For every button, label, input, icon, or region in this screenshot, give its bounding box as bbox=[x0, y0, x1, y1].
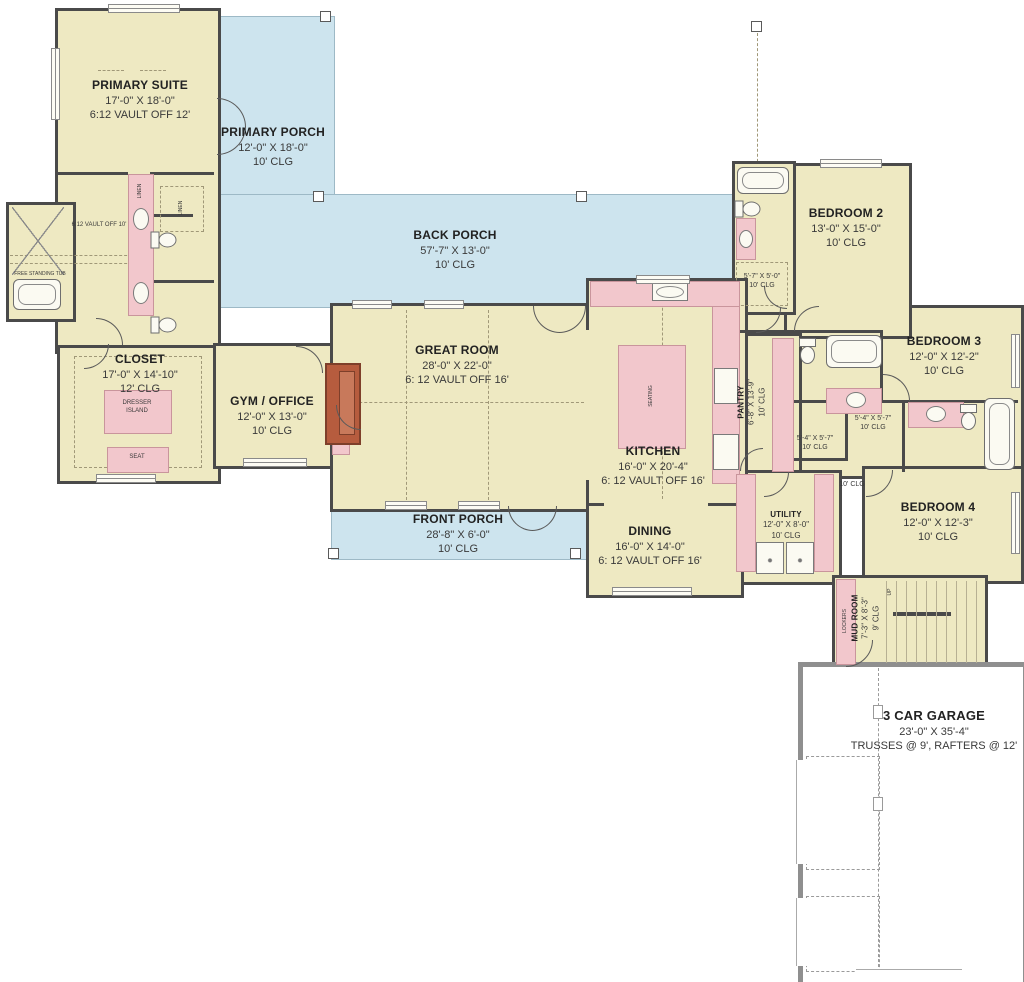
washer-icon bbox=[756, 542, 784, 574]
window bbox=[820, 159, 882, 168]
room-note: 6: 12 VAULT OFF 16' bbox=[598, 554, 702, 568]
room-label-closet: CLOSET 17'-0" X 14'-10" 12' CLG bbox=[102, 352, 178, 396]
room-label-wic-mid: 5'-4" X 5'-7" 10' CLG bbox=[855, 414, 891, 432]
dryer-icon bbox=[786, 542, 814, 574]
room-note: 10' CLG bbox=[907, 364, 981, 378]
wall-segment bbox=[150, 280, 214, 283]
room-note: 10' CLG bbox=[744, 281, 780, 290]
room-dims: 12'-0" X 13'-0" bbox=[230, 410, 314, 424]
room-name: BEDROOM 2 bbox=[809, 206, 883, 222]
wall-segment bbox=[902, 400, 905, 472]
room-note: 6: 12 VAULT OFF 16' bbox=[405, 373, 509, 387]
utility-counter bbox=[814, 474, 834, 572]
room-label-bedroom2: BEDROOM 2 13'-0" X 15'-0" 10' CLG bbox=[809, 206, 883, 250]
primary-bath-vault-label: 6:12 VAULT OFF 10' bbox=[72, 222, 127, 230]
room-name: PRIMARY SUITE bbox=[90, 78, 191, 94]
furniture-text: FREE STANDING TUB bbox=[14, 271, 66, 278]
room-label-bedroom2-closet: 5'-7" X 5'-0" 10' CLG bbox=[744, 272, 780, 290]
ceiling-line bbox=[334, 402, 584, 403]
furniture-text: SEATING bbox=[648, 385, 655, 407]
room-name: DINING bbox=[598, 524, 702, 540]
window bbox=[51, 48, 60, 120]
room-dims: 5'-4" X 5'-7" bbox=[855, 414, 891, 423]
room-dims: 5'-4" X 5'-7" bbox=[797, 434, 833, 443]
room-name: MUD ROOM bbox=[850, 595, 860, 642]
vault-line bbox=[98, 70, 124, 71]
furniture-text: LINEN bbox=[137, 184, 144, 199]
room-label-great-room: GREAT ROOM 28'-0" X 22'-0" 6: 12 VAULT O… bbox=[405, 343, 509, 387]
porch-post-icon bbox=[751, 21, 762, 32]
furniture-text: SEAT bbox=[129, 454, 144, 462]
garage-door-opening bbox=[796, 898, 807, 966]
toilet-icon bbox=[151, 316, 178, 336]
vault-line bbox=[140, 70, 166, 71]
room-dims: 16'-0" X 14'-0" bbox=[598, 540, 702, 554]
room-dims: 7'-3" X 8'-3" bbox=[861, 595, 871, 642]
porch-post-icon bbox=[320, 11, 331, 22]
stairs bbox=[886, 581, 978, 663]
porch-post-icon bbox=[313, 191, 324, 202]
ceiling-line bbox=[488, 310, 489, 500]
sink-icon bbox=[739, 230, 753, 248]
room-label-primary-porch: PRIMARY PORCH 12'-0" X 18'-0" 10' CLG bbox=[221, 125, 325, 169]
room-note: 10' CLG bbox=[809, 236, 883, 250]
room-dims: 5'-7" X 5'-0" bbox=[744, 272, 780, 281]
room-label-primary-suite: PRIMARY SUITE 17'-0" X 18'-0" 6:12 VAULT… bbox=[90, 78, 191, 122]
garage-door-opening bbox=[856, 969, 962, 980]
linen-closet-label: LINEN bbox=[178, 201, 185, 216]
window bbox=[352, 300, 392, 309]
range-icon bbox=[714, 368, 738, 404]
room-dims: 12'-0" X 12'-2" bbox=[907, 350, 981, 364]
room-name: CLOSET bbox=[102, 352, 178, 368]
garage-post-icon bbox=[873, 797, 883, 811]
garage-door-track bbox=[806, 756, 880, 870]
sink-icon bbox=[133, 282, 149, 304]
room-label-pantry: PANTRY 6'-8" X 13'-9" 10' CLG bbox=[736, 379, 767, 425]
room-note: 10' CLG bbox=[855, 423, 891, 432]
room-note: 12' CLG bbox=[102, 382, 178, 396]
window bbox=[458, 501, 500, 510]
window bbox=[108, 4, 180, 13]
cased-opening bbox=[604, 500, 708, 510]
room-note: 10' CLG bbox=[757, 379, 767, 425]
room-dims: 12'-0" X 18'-0" bbox=[221, 141, 325, 155]
room-note: 10' CLG bbox=[797, 443, 833, 452]
room-note: 9' CLG bbox=[871, 595, 881, 642]
room-note: TRUSSES @ 9', RAFTERS @ 12' bbox=[851, 739, 1018, 753]
room-dims: 17'-0" X 14'-10" bbox=[102, 368, 178, 382]
room-note: 10' CLG bbox=[901, 530, 975, 544]
room-dims: 28'-8" X 6'-0" bbox=[413, 528, 503, 542]
toilet-icon bbox=[151, 231, 178, 251]
window bbox=[1011, 334, 1020, 388]
room-dims: 6'-8" X 13'-9" bbox=[747, 379, 757, 425]
wall-segment bbox=[150, 172, 214, 175]
room-label-back-porch: BACK PORCH 57'-7" X 13'-0" 10' CLG bbox=[413, 228, 496, 272]
room-dims: 17'-0" X 18'-0" bbox=[90, 94, 191, 108]
room-name: PANTRY bbox=[736, 379, 746, 425]
sink-icon bbox=[926, 406, 946, 422]
wall-segment bbox=[58, 172, 128, 175]
furniture-text: DRESSER ISLAND bbox=[114, 400, 160, 416]
room-name: GREAT ROOM bbox=[405, 343, 509, 359]
freestanding-tub-icon bbox=[13, 279, 61, 310]
refrigerator-icon bbox=[713, 434, 739, 470]
room-name: BEDROOM 3 bbox=[907, 334, 981, 350]
window bbox=[96, 474, 156, 483]
linen-cabinet-label: LINEN bbox=[137, 184, 144, 199]
window bbox=[1011, 492, 1020, 554]
garage-door-opening bbox=[796, 760, 807, 864]
window bbox=[385, 501, 427, 510]
room-label-dining: DINING 16'-0" X 14'-0" 6: 12 VAULT OFF 1… bbox=[598, 524, 702, 568]
hall-ceiling-label: 10' CLG bbox=[839, 480, 864, 489]
furniture-text: LINEN bbox=[178, 201, 185, 216]
bathtub-icon bbox=[984, 398, 1015, 470]
wall-segment bbox=[788, 458, 848, 461]
shower-icon bbox=[12, 207, 64, 275]
room-label-front-porch: FRONT PORCH 28'-8" X 6'-0" 10' CLG bbox=[413, 512, 503, 556]
ceiling-line bbox=[406, 310, 407, 500]
floor-plan: PRIMARY SUITE 17'-0" X 18'-0" 6:12 VAULT… bbox=[0, 0, 1024, 982]
sink-icon bbox=[133, 208, 149, 230]
room-label-wic-left: 5'-4" X 5'-7" 10' CLG bbox=[797, 434, 833, 452]
room-name: BEDROOM 4 bbox=[901, 500, 975, 516]
dresser-island-label: DRESSER ISLAND bbox=[114, 400, 160, 416]
furniture-text: LOCKERS bbox=[842, 609, 849, 633]
room-note: 6:12 VAULT OFF 12' bbox=[90, 108, 191, 122]
room-name: PRIMARY PORCH bbox=[221, 125, 325, 141]
room-label-bedroom4: BEDROOM 4 12'-0" X 12'-3" 10' CLG bbox=[901, 500, 975, 544]
room-dims: 12'-0" X 8'-0" bbox=[763, 520, 809, 530]
cased-opening bbox=[584, 330, 594, 480]
furniture-text: UP bbox=[887, 589, 894, 596]
room-name: GYM / OFFICE bbox=[230, 394, 314, 410]
room-note: 10' CLG bbox=[230, 424, 314, 438]
room-note: 10' CLG bbox=[763, 531, 809, 541]
room-dims: 12'-0" X 12'-3" bbox=[901, 516, 975, 530]
pantry-shelving bbox=[772, 338, 794, 472]
porch-post-icon bbox=[328, 548, 339, 559]
island-seating-label: SEATING bbox=[648, 385, 655, 407]
room-label-garage: 3 CAR GARAGE 23'-0" X 35'-4" TRUSSES @ 9… bbox=[851, 708, 1018, 753]
free-standing-tub-label: FREE STANDING TUB bbox=[14, 271, 66, 278]
toilet-icon bbox=[797, 338, 817, 365]
garage-door-track bbox=[806, 896, 880, 972]
great-room-block bbox=[330, 303, 594, 512]
room-note: 10' CLG bbox=[413, 258, 496, 272]
window bbox=[636, 275, 690, 284]
room-label-bedroom3: BEDROOM 3 12'-0" X 12'-2" 10' CLG bbox=[907, 334, 981, 378]
window bbox=[612, 587, 692, 596]
room-name: BACK PORCH bbox=[413, 228, 496, 244]
room-dims: 57'-7" X 13'-0" bbox=[413, 244, 496, 258]
room-label-gym-office: GYM / OFFICE 12'-0" X 13'-0" 10' CLG bbox=[230, 394, 314, 438]
room-name: UTILITY bbox=[763, 510, 809, 520]
room-name: FRONT PORCH bbox=[413, 512, 503, 528]
room-name: KITCHEN bbox=[601, 444, 705, 460]
room-name: 3 CAR GARAGE bbox=[851, 708, 1018, 725]
room-dims: 23'-0" X 35'-4" bbox=[851, 725, 1018, 739]
toilet-icon bbox=[735, 200, 762, 220]
window bbox=[243, 458, 307, 467]
lockers-label: LOCKERS bbox=[842, 609, 849, 633]
utility-counter bbox=[736, 474, 756, 572]
room-dims: 16'-0" X 20'-4" bbox=[601, 460, 705, 474]
porch-post-icon bbox=[576, 191, 587, 202]
seat-label: SEAT bbox=[129, 454, 144, 462]
room-dims: 28'-0" X 22'-0" bbox=[405, 359, 509, 373]
toilet-icon bbox=[958, 404, 978, 431]
room-note: 6: 12 VAULT OFF 16' bbox=[601, 474, 705, 488]
room-note: 10' CLG bbox=[413, 542, 503, 556]
porch-post-icon bbox=[570, 548, 581, 559]
bathtub-icon bbox=[737, 167, 789, 194]
bathtub-icon bbox=[826, 335, 882, 368]
room-note: 10' CLG bbox=[221, 155, 325, 169]
kitchen-sink-icon bbox=[652, 283, 688, 301]
room-label-utility: UTILITY 12'-0" X 8'-0" 10' CLG bbox=[763, 510, 809, 541]
sink-icon bbox=[846, 392, 866, 408]
room-label-mud-room: MUD ROOM 7'-3" X 8'-3" 9' CLG bbox=[850, 595, 881, 642]
window bbox=[424, 300, 464, 309]
stairs-up-label: UP bbox=[887, 589, 894, 596]
room-note: 10' CLG bbox=[839, 480, 864, 489]
room-dims: 13'-0" X 15'-0" bbox=[809, 222, 883, 236]
room-label-kitchen: KITCHEN 16'-0" X 20'-4" 6: 12 VAULT OFF … bbox=[601, 444, 705, 488]
room-note: 6:12 VAULT OFF 10' bbox=[72, 222, 127, 230]
